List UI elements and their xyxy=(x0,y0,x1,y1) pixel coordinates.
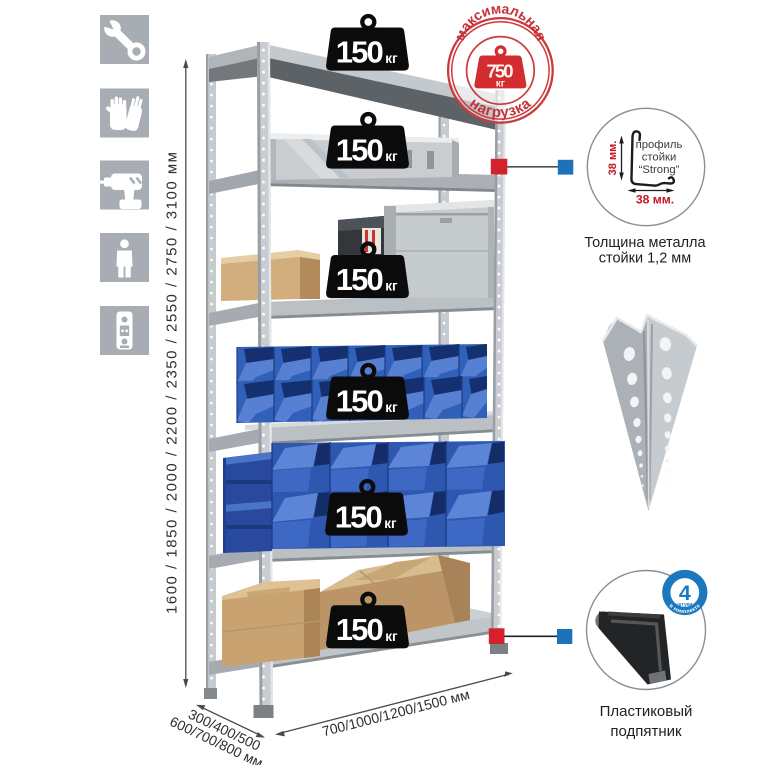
svg-text:“Strong”: “Strong” xyxy=(639,164,680,176)
svg-text:профиль: профиль xyxy=(636,139,683,151)
svg-text:подпятник: подпятник xyxy=(610,723,682,740)
svg-text:38 мм.: 38 мм. xyxy=(636,193,674,207)
svg-text:Толщина металла: Толщина металла xyxy=(584,235,706,251)
svg-text:штуки: штуки xyxy=(677,602,692,608)
svg-text:38 мм.: 38 мм. xyxy=(607,141,619,176)
svg-text:стойки: стойки xyxy=(642,152,677,164)
svg-text:Пластиковый: Пластиковый xyxy=(600,703,693,720)
svg-text:стойки 1,2 мм: стойки 1,2 мм xyxy=(599,251,692,267)
svg-text:1600 / 1850 / 2000 / 2200 / 23: 1600 / 1850 / 2000 / 2200 / 2350 / 2550 … xyxy=(164,152,181,614)
svg-text:кг: кг xyxy=(496,79,505,90)
